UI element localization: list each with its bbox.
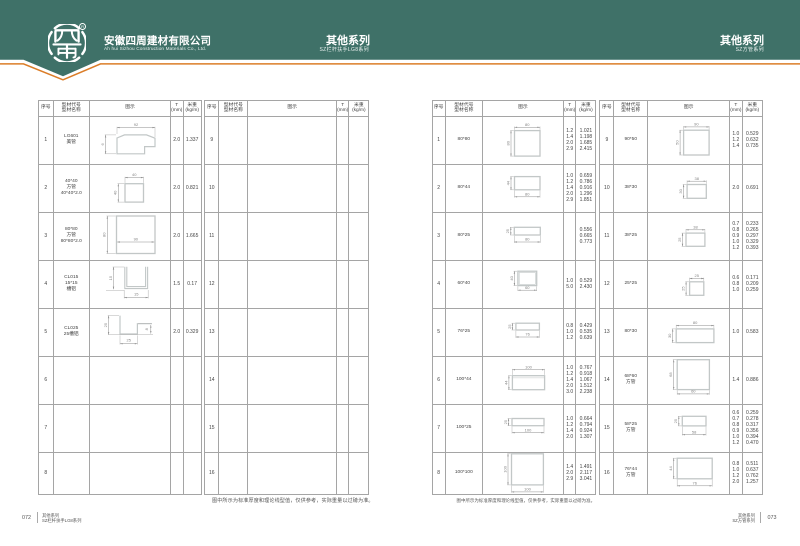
- svg-text:92: 92: [134, 122, 139, 127]
- svg-text:80: 80: [102, 232, 107, 237]
- svg-text:6: 6: [100, 143, 105, 146]
- svg-text:38: 38: [693, 224, 698, 229]
- svg-text:30: 30: [678, 188, 683, 193]
- svg-text:44: 44: [503, 380, 508, 385]
- svg-text:76: 76: [692, 481, 697, 486]
- svg-text:25: 25: [681, 286, 686, 291]
- svg-text:40: 40: [113, 190, 118, 195]
- svg-text:80: 80: [693, 320, 698, 325]
- svg-text:80: 80: [525, 122, 530, 127]
- svg-text:25: 25: [505, 228, 510, 233]
- svg-text:25: 25: [507, 324, 512, 329]
- svg-text:40: 40: [132, 172, 137, 177]
- svg-text:68: 68: [668, 372, 673, 377]
- svg-text:25: 25: [677, 237, 682, 242]
- svg-text:30: 30: [667, 333, 672, 338]
- svg-text:25: 25: [694, 273, 699, 278]
- svg-text:76: 76: [525, 332, 530, 337]
- svg-text:38: 38: [694, 176, 699, 181]
- svg-text:25: 25: [126, 338, 131, 343]
- svg-text:100: 100: [525, 364, 532, 369]
- svg-text:8: 8: [144, 327, 149, 330]
- svg-text:25: 25: [673, 418, 678, 423]
- svg-text:60: 60: [691, 389, 696, 394]
- svg-text:100: 100: [525, 427, 532, 432]
- svg-text:80: 80: [525, 237, 530, 242]
- svg-text:80: 80: [525, 192, 530, 197]
- svg-text:25: 25: [503, 419, 508, 424]
- svg-text:25: 25: [103, 322, 108, 327]
- svg-text:58: 58: [692, 429, 697, 434]
- svg-text:15: 15: [108, 275, 113, 280]
- svg-text:90: 90: [694, 122, 699, 127]
- svg-text:15: 15: [134, 291, 139, 296]
- svg-text:60: 60: [525, 285, 530, 290]
- svg-text:100: 100: [524, 487, 531, 492]
- svg-text:90: 90: [134, 237, 139, 242]
- svg-text:44: 44: [668, 466, 673, 471]
- svg-text:100: 100: [502, 465, 507, 472]
- svg-text:80: 80: [505, 140, 510, 145]
- svg-text:40: 40: [509, 275, 514, 280]
- svg-text:44: 44: [505, 180, 510, 185]
- svg-text:50: 50: [675, 140, 680, 145]
